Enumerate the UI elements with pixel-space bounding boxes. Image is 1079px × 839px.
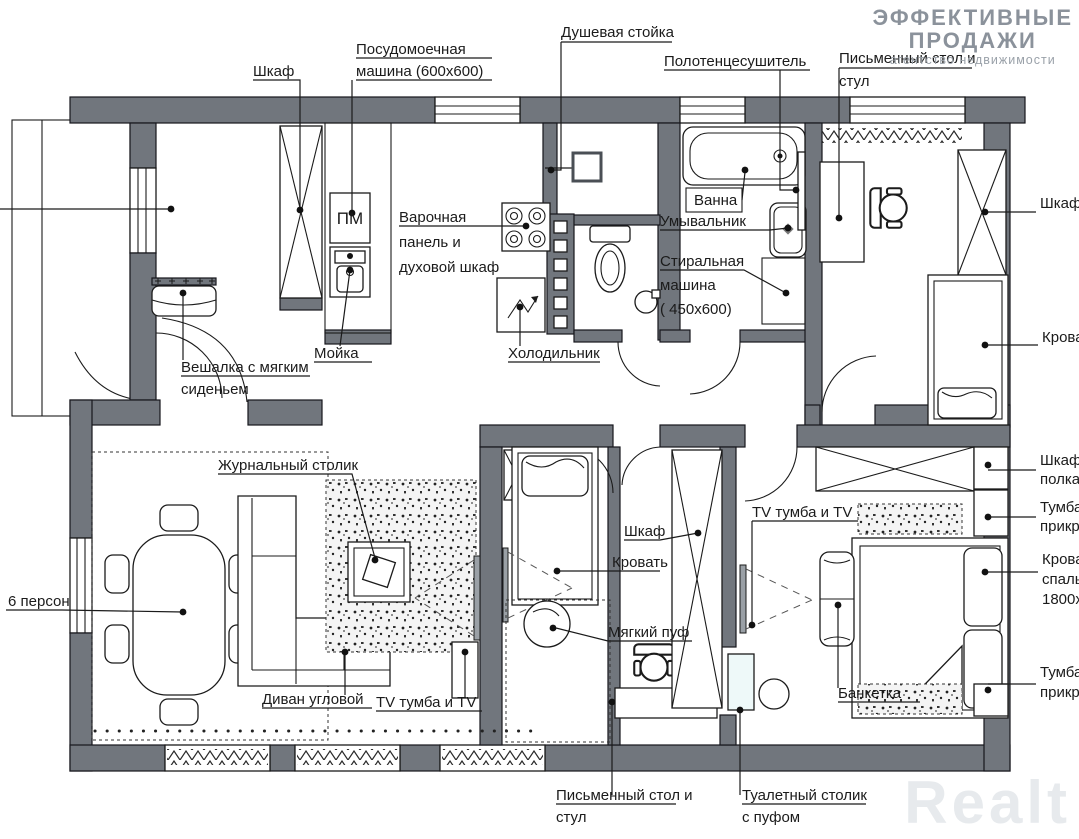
toilet: [590, 226, 630, 292]
coffee-table: [348, 542, 410, 602]
label-hob-2: панель и: [399, 234, 461, 251]
label-dressing-1: Туалетный столик: [742, 787, 867, 804]
label-bench: Банкетка: [838, 685, 902, 702]
label-right-wardrobe: Шкаф: [1040, 195, 1079, 212]
label-hanger-1: Вешалка с мягким: [181, 359, 309, 376]
window-bottom-2: [295, 745, 400, 771]
label-right-tumba2-2: прикр: [1040, 684, 1079, 701]
label-hob-1: Варочная: [399, 209, 466, 226]
label-right-shelf-1: Шкаф: [1040, 452, 1079, 469]
label-desk-bottom-1: Письменный стол и: [556, 787, 693, 804]
label-bed-mid: Кровать: [612, 554, 668, 571]
dressing-table: [728, 654, 789, 710]
watermark: Realt: [904, 768, 1071, 837]
label-hob-3: духовой шкаф: [399, 259, 499, 276]
label-tv-master: TV тумба и TV: [752, 504, 852, 521]
master-tumba-top: [974, 447, 1008, 536]
window-living-left: [70, 538, 92, 633]
mid-bed: [512, 447, 598, 605]
office-desk: [820, 162, 907, 262]
label-6-persons: 6 персон: [8, 593, 70, 610]
wc-sink: [635, 290, 660, 313]
window-kitchen-top: [435, 97, 520, 123]
label-corner-sofa: Диван угловой: [262, 691, 364, 708]
label-right-bed: Крова: [1042, 329, 1079, 346]
label-coffee-table: Журнальный столик: [218, 457, 359, 474]
corridor-wardrobe: [672, 450, 722, 708]
label-washbasin: Умывальник: [660, 213, 746, 230]
agency-logo-line2: ПРОДАЖИ: [872, 29, 1073, 52]
window-bottom-1: [165, 745, 270, 771]
dining-table: [105, 505, 253, 725]
window-bottom-3: [440, 745, 545, 771]
label-right-bed2-3: 1800х: [1042, 591, 1079, 608]
agency-logo: ЭФФЕКТИВНЫЕ ПРОДАЖИ агентство недвижимос…: [872, 6, 1073, 67]
label-tv-living: TV тумба и TV: [376, 694, 476, 711]
label-bath: Ванна: [694, 192, 738, 209]
agency-logo-subtitle: агентство недвижимости: [872, 54, 1073, 67]
window-office-top: [850, 97, 965, 123]
entry-bench: [152, 278, 216, 316]
label-hanger-2: сиденьем: [181, 381, 249, 398]
label-wardrobe-mid: Шкаф: [624, 523, 665, 540]
master-shelf: [816, 447, 974, 491]
label-right-bed2-2: спаль: [1042, 571, 1079, 588]
mid-pouf: [524, 601, 570, 647]
label-right-tumba1-2: прикр: [1040, 518, 1079, 535]
agency-logo-line1: ЭФФЕКТИВНЫЕ: [872, 6, 1073, 29]
label-washer-2: машина: [660, 277, 716, 294]
label-washer-3: ( 450х600): [660, 301, 732, 318]
window-bath-top: [680, 97, 745, 123]
master-bench: [820, 552, 854, 646]
label-washer-1: Стиральная: [660, 253, 744, 270]
porch-outline: [12, 120, 133, 416]
floor-plan-drawing: Шкаф Посудомоечная машина (600х600) Душе…: [0, 0, 1079, 839]
office-bed: [928, 275, 1008, 425]
label-dishwasher-1: Посудомоечная: [356, 41, 466, 58]
window-hall-left: [130, 168, 156, 253]
kitchen-counter: [325, 123, 391, 333]
label-desk-top-2: стул: [839, 73, 869, 90]
label-dressing-2: с пуфом: [742, 809, 800, 826]
duct-shaft: [547, 214, 574, 334]
label-right-tumba1-1: Тумба: [1040, 499, 1079, 516]
floor-plan-page: Шкаф Посудомоечная машина (600х600) Душе…: [0, 0, 1079, 839]
label-right-shelf-2: полка: [1040, 471, 1079, 488]
label-shower-stand: Душевая стойка: [561, 24, 675, 41]
label-dishwasher-pm: ПМ: [337, 209, 363, 228]
label-desk-bottom-2: стул: [556, 809, 586, 826]
office-curtain: [822, 128, 962, 143]
label-towel-dryer: Полотенцесушитель: [664, 53, 807, 70]
label-pouf: Мягкий пуф: [608, 624, 689, 641]
label-right-tumba2-1: Тумба: [1040, 664, 1079, 681]
label-kitchen-sink: Мойка: [314, 345, 359, 362]
master-rug-top: [858, 504, 962, 534]
label-dishwasher-2: машина (600х600): [356, 63, 483, 80]
label-right-bed2-1: Крова: [1042, 551, 1079, 568]
label-fridge: Холодильник: [508, 345, 600, 362]
label-wardrobe-top: Шкаф: [253, 63, 294, 80]
